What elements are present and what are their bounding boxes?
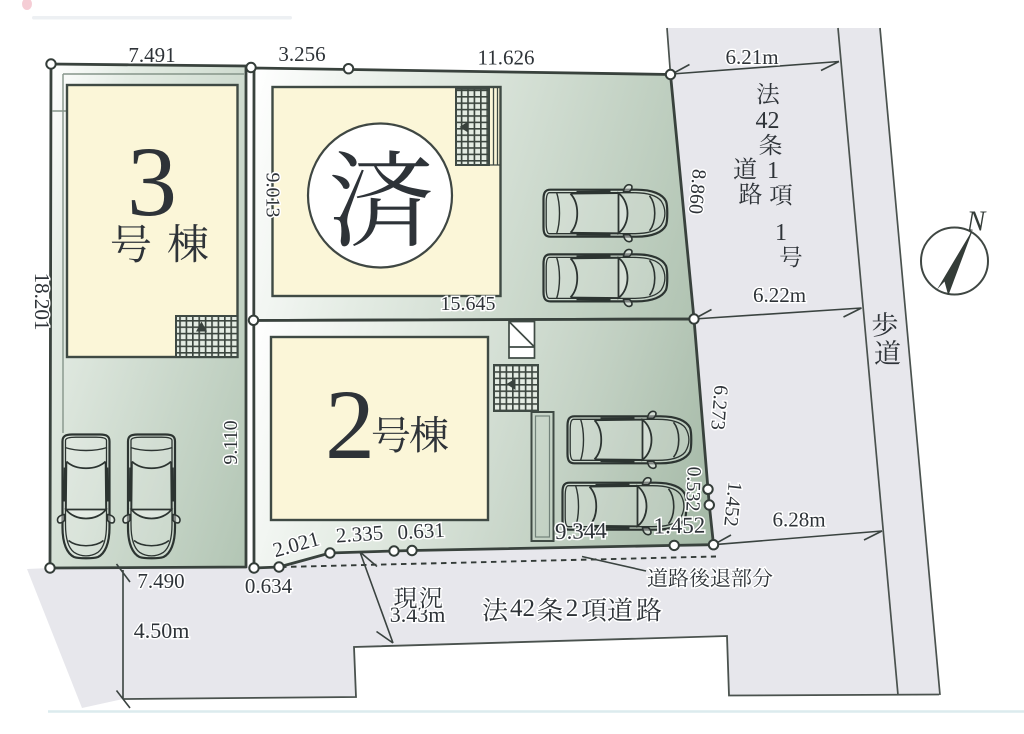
svg-text:1: 1 [767, 158, 779, 184]
svg-text:9.013: 9.013 [262, 173, 284, 218]
svg-text:2: 2 [566, 595, 579, 622]
svg-text:6.21m: 6.21m [725, 45, 778, 69]
svg-text:9.110: 9.110 [220, 420, 242, 464]
svg-text:6.28m: 6.28m [772, 508, 825, 532]
svg-text:42: 42 [510, 595, 535, 622]
svg-text:1.452: 1.452 [719, 481, 746, 528]
svg-text:42: 42 [756, 108, 780, 134]
svg-text:1: 1 [775, 220, 787, 246]
svg-text:0.532: 0.532 [681, 466, 705, 512]
svg-text:18.201: 18.201 [30, 273, 54, 331]
svg-text:7.490: 7.490 [137, 569, 184, 593]
svg-text:4.50m: 4.50m [134, 618, 190, 643]
svg-text:8.860: 8.860 [684, 168, 710, 215]
svg-text:2: 2 [325, 369, 375, 480]
svg-text:1.452: 1.452 [653, 513, 705, 539]
svg-text:3: 3 [127, 126, 177, 237]
svg-text:0.634: 0.634 [245, 574, 293, 598]
svg-text:6.22m: 6.22m [753, 283, 806, 307]
svg-text:N: N [966, 207, 987, 238]
svg-text:11.626: 11.626 [478, 46, 535, 70]
svg-text:0.631: 0.631 [397, 518, 445, 544]
svg-text:7.491: 7.491 [128, 43, 175, 67]
svg-text:15.645: 15.645 [441, 293, 496, 315]
svg-text:3.256: 3.256 [278, 42, 325, 66]
svg-text:9.344: 9.344 [555, 518, 608, 544]
svg-text:6.273: 6.273 [706, 384, 732, 431]
svg-text:2.335: 2.335 [335, 520, 384, 547]
